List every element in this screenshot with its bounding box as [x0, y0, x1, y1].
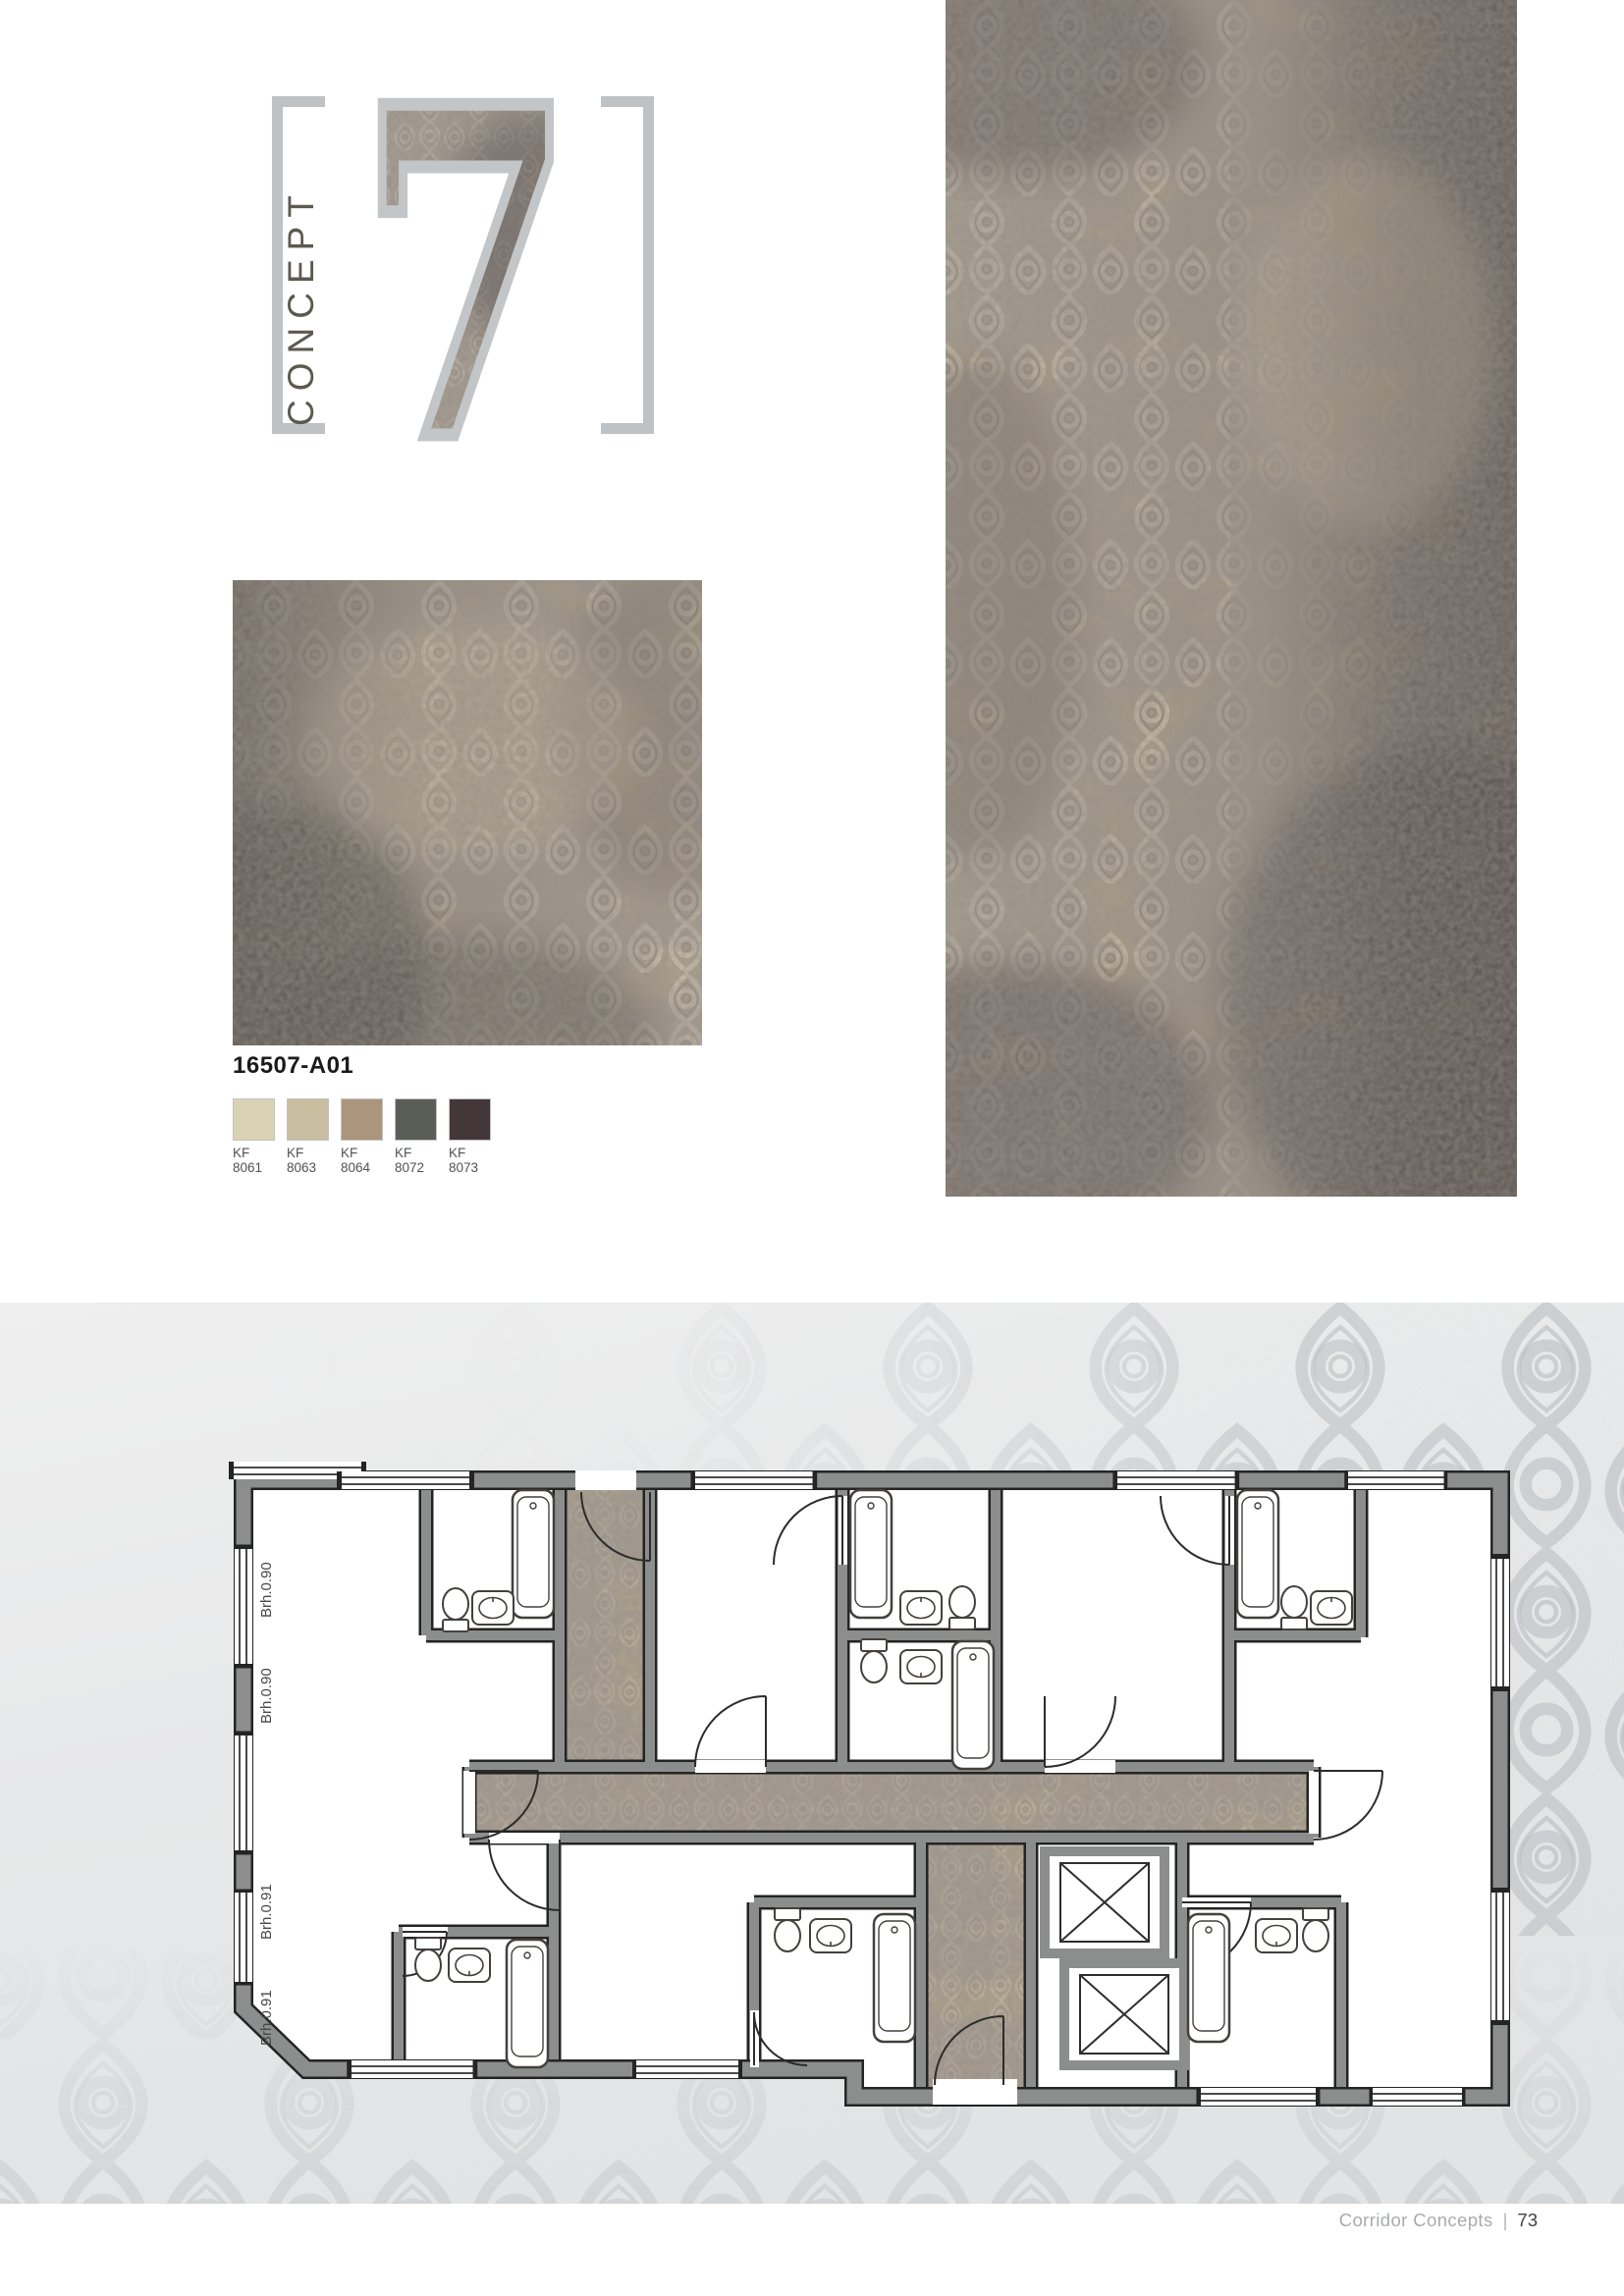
footer-title: Corridor Concepts	[1339, 2210, 1493, 2231]
footer-separator: |	[1503, 2210, 1508, 2231]
color-chip	[287, 1098, 329, 1141]
swatch-label: KF8073	[449, 1146, 491, 1175]
page-number: 73	[1517, 2210, 1538, 2231]
carpet-sample-tall	[946, 0, 1517, 1197]
elevator-shafts	[1045, 1851, 1184, 2065]
color-chip	[449, 1098, 491, 1141]
concept-label: CONCEPT	[281, 130, 322, 426]
swatch-item: KF8073	[449, 1098, 491, 1175]
swatch-item: KF8064	[341, 1098, 383, 1175]
swatch-label: KF8063	[287, 1146, 329, 1175]
swatch-row: KF8061 KF8063 KF8064 KF8072 KF8073	[233, 1098, 491, 1175]
swatch-label: KF8072	[395, 1146, 437, 1175]
swatch-item: KF8072	[395, 1098, 437, 1175]
page-footer: Corridor Concepts | 73	[1339, 2210, 1538, 2231]
room-label: Brh.0.91	[258, 1990, 275, 2046]
catalog-page: CONCEPT 7	[0, 0, 1624, 2296]
bracket-right-icon	[601, 96, 654, 434]
room-label: Brh.0.90	[258, 1668, 275, 1724]
swatch-item: KF8063	[287, 1098, 329, 1175]
floor-plan: Brh.0.90 Brh.0.90 Brh.0.91 Brh.0.91	[229, 1462, 1509, 2107]
swatch-item: KF8061	[233, 1098, 275, 1175]
concept-number-seven: 7	[355, 92, 581, 446]
product-code: 16507-A01	[233, 1052, 353, 1080]
corridor-concept-panel: Brh.0.90 Brh.0.90 Brh.0.91 Brh.0.91	[0, 1303, 1624, 2204]
color-chip	[233, 1098, 275, 1141]
room-label: Brh.0.90	[258, 1562, 275, 1618]
carpet-sample-square	[233, 580, 702, 1045]
swatch-label: KF8064	[341, 1146, 383, 1175]
room-label: Brh.0.91	[258, 1884, 275, 1940]
swatch-label: KF8061	[233, 1146, 275, 1175]
color-chip	[341, 1098, 383, 1141]
color-chip	[395, 1098, 437, 1141]
